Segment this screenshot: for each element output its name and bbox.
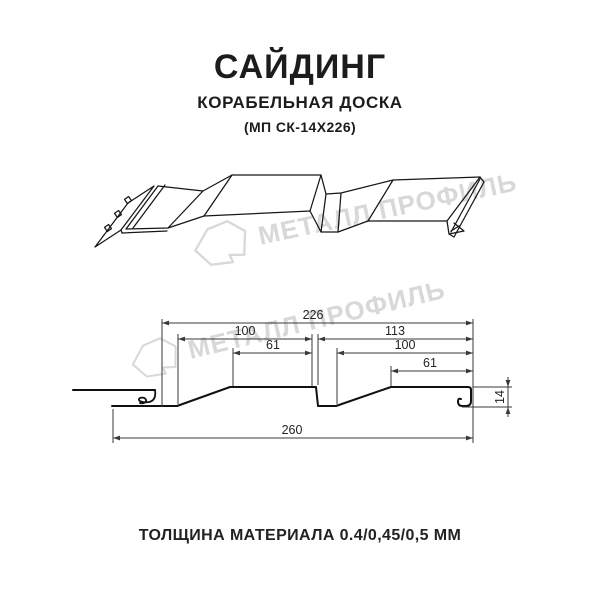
extension-lines (113, 319, 512, 443)
dimension-lines (113, 323, 508, 438)
profile-break-edges (168, 175, 480, 232)
dim-label-14: 14 (493, 390, 507, 404)
dim-label-226: 226 (303, 308, 324, 322)
profile-3d-drawing (95, 175, 484, 247)
dim-label-260: 260 (282, 423, 303, 437)
dim-label-100-left: 100 (235, 324, 256, 338)
section-profile (112, 387, 471, 406)
mounting-strip (95, 186, 154, 247)
siding-technical-drawing: 226 100 113 61 100 61 260 14 (0, 0, 600, 600)
cross-section-drawing: 226 100 113 61 100 61 260 14 (73, 308, 512, 443)
dim-label-113: 113 (385, 324, 405, 338)
dim-label-61-left: 61 (266, 338, 280, 352)
far-profile-edge (158, 175, 480, 194)
dim-label-61-right: 61 (423, 356, 437, 370)
panel-end-fold (447, 177, 484, 237)
product-drawing-page: САЙДИНГ КОРАБЕЛЬНАЯ ДОСКА (МП СК-14Х226)… (0, 0, 600, 600)
profile-outline (73, 387, 471, 406)
lock-hook (139, 390, 155, 403)
dim-label-100-right: 100 (395, 338, 416, 352)
